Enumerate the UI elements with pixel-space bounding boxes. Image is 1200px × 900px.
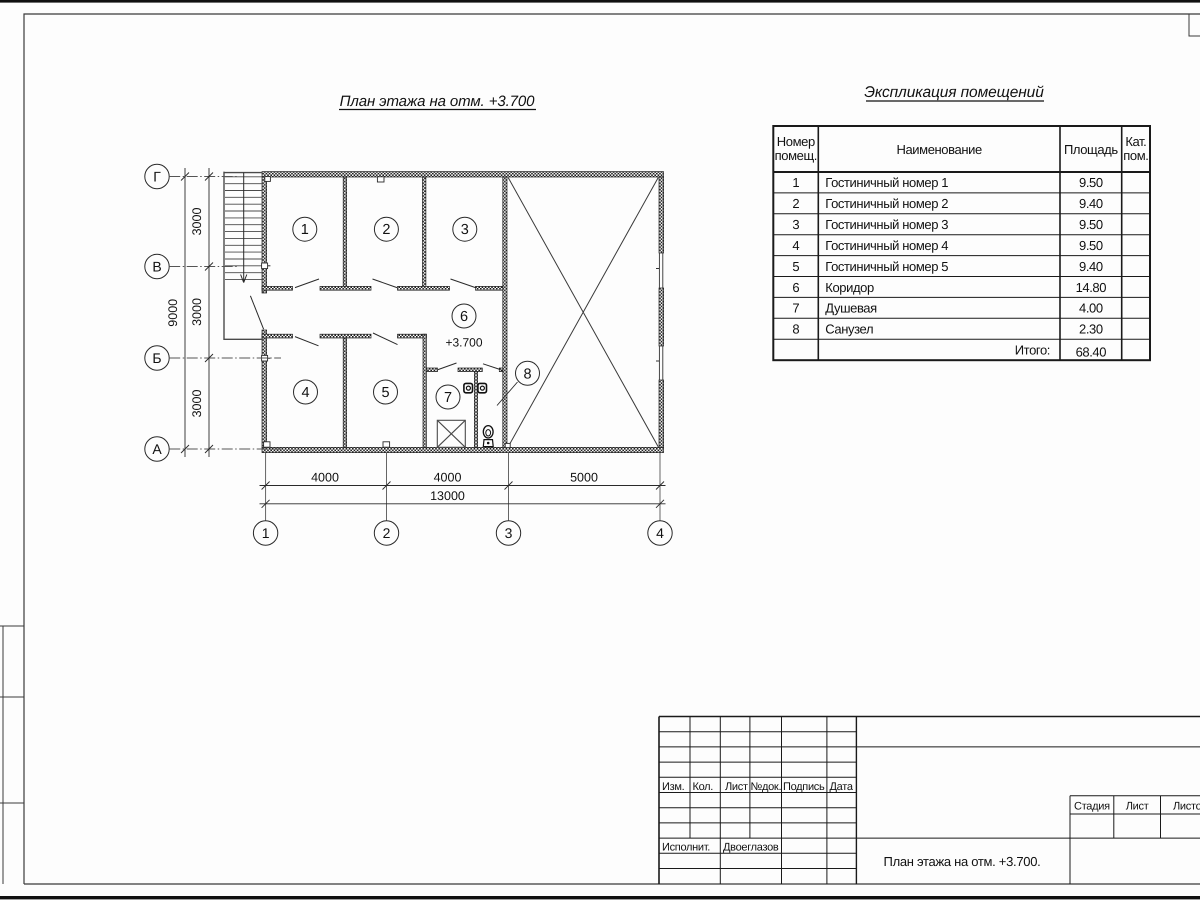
svg-text:8: 8 (792, 322, 799, 337)
svg-text:Гостиничный номер 3: Гостиничный номер 3 (825, 217, 948, 232)
svg-text:В: В (152, 259, 161, 275)
svg-text:А: А (152, 441, 162, 457)
svg-text:Лист: Лист (725, 781, 748, 793)
svg-text:Двоеглазов: Двоеглазов (723, 842, 779, 854)
svg-text:4000: 4000 (434, 471, 462, 485)
svg-text:2: 2 (382, 222, 390, 238)
svg-text:Г: Г (153, 169, 161, 185)
svg-text:Итого:: Итого: (1015, 343, 1050, 358)
svg-text:3000: 3000 (190, 390, 204, 418)
svg-text:Стадия: Стадия (1074, 801, 1110, 813)
svg-text:14.80: 14.80 (1076, 280, 1107, 295)
svg-text:+3.700: +3.700 (445, 336, 482, 350)
svg-text:Площадь: Площадь (1064, 142, 1118, 157)
svg-text:Наименование: Наименование (896, 142, 981, 157)
svg-text:Санузел: Санузел (825, 322, 873, 337)
svg-text:6: 6 (792, 280, 799, 295)
svg-text:13000: 13000 (430, 489, 465, 503)
svg-text:План этажа на отм. +3.700.: План этажа на отм. +3.700. (884, 854, 1041, 869)
svg-text:3: 3 (792, 217, 799, 232)
svg-text:Коридор: Коридор (825, 280, 874, 295)
svg-text:2: 2 (383, 525, 391, 541)
svg-text:Кат.: Кат. (1125, 134, 1146, 149)
svg-text:9.50: 9.50 (1079, 217, 1103, 232)
svg-text:Лист: Лист (1126, 801, 1149, 813)
svg-text:1: 1 (301, 222, 309, 238)
svg-text:4: 4 (301, 385, 309, 401)
svg-text:Душевая: Душевая (825, 301, 877, 316)
svg-text:7: 7 (444, 390, 452, 406)
svg-text:План этажа на отм. +3.700: План этажа на отм. +3.700 (340, 93, 536, 110)
svg-text:Дата: Дата (830, 781, 854, 793)
svg-text:№док.: №док. (751, 781, 782, 793)
svg-text:2: 2 (792, 196, 799, 211)
svg-text:9.50: 9.50 (1079, 175, 1103, 190)
svg-text:4: 4 (792, 238, 799, 253)
svg-text:4.00: 4.00 (1079, 301, 1103, 316)
svg-text:3: 3 (505, 525, 513, 541)
svg-text:1: 1 (262, 525, 270, 541)
svg-text:3000: 3000 (190, 298, 204, 326)
svg-text:1: 1 (792, 175, 799, 190)
svg-text:Гостиничный номер 2: Гостиничный номер 2 (825, 196, 948, 211)
svg-text:Исполнит.: Исполнит. (662, 842, 710, 854)
svg-text:4: 4 (656, 525, 664, 541)
svg-text:пом.: пом. (1123, 148, 1148, 163)
svg-text:9.40: 9.40 (1079, 196, 1103, 211)
svg-text:3: 3 (461, 222, 469, 238)
svg-text:Б: Б (152, 350, 161, 366)
svg-text:помещ.: помещ. (775, 148, 817, 163)
svg-text:Номер: Номер (777, 134, 815, 149)
svg-text:5: 5 (792, 259, 799, 274)
svg-text:4000: 4000 (311, 471, 339, 485)
svg-text:6: 6 (460, 309, 468, 325)
svg-text:7: 7 (792, 301, 799, 316)
svg-text:Гостиничный номер 1: Гостиничный номер 1 (825, 175, 948, 190)
svg-text:Гостиничный номер 5: Гостиничный номер 5 (825, 259, 948, 274)
svg-text:Листов: Листов (1173, 801, 1200, 813)
svg-text:3000: 3000 (190, 208, 204, 236)
svg-text:Кол.: Кол. (693, 781, 714, 793)
svg-text:9.50: 9.50 (1079, 238, 1103, 253)
svg-text:8: 8 (523, 366, 531, 382)
svg-text:68.40: 68.40 (1076, 345, 1107, 360)
svg-text:2.30: 2.30 (1079, 322, 1103, 337)
svg-text:5000: 5000 (570, 471, 598, 485)
svg-text:9.40: 9.40 (1079, 259, 1103, 274)
svg-text:Экспликация помещений: Экспликация помещений (864, 84, 1044, 101)
svg-text:Гостиничный номер 4: Гостиничный номер 4 (825, 238, 948, 253)
svg-text:5: 5 (381, 385, 389, 401)
svg-text:Изм.: Изм. (662, 781, 685, 793)
svg-text:Подпись: Подпись (783, 781, 825, 793)
svg-text:9000: 9000 (166, 299, 180, 327)
